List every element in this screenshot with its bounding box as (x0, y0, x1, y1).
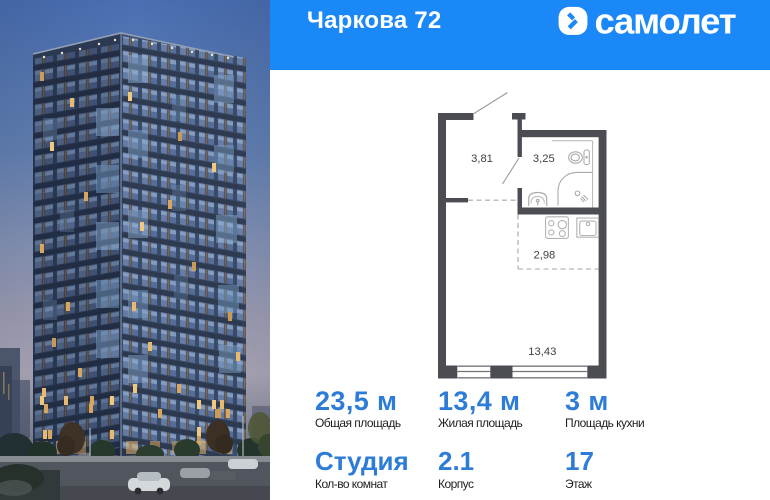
svg-text:3,25: 3,25 (533, 153, 555, 165)
svg-text:самолет: самолет (595, 4, 736, 38)
svg-text:13,43: 13,43 (528, 346, 556, 358)
svg-text:2,98: 2,98 (534, 250, 556, 262)
svg-text:3,81: 3,81 (471, 153, 493, 165)
